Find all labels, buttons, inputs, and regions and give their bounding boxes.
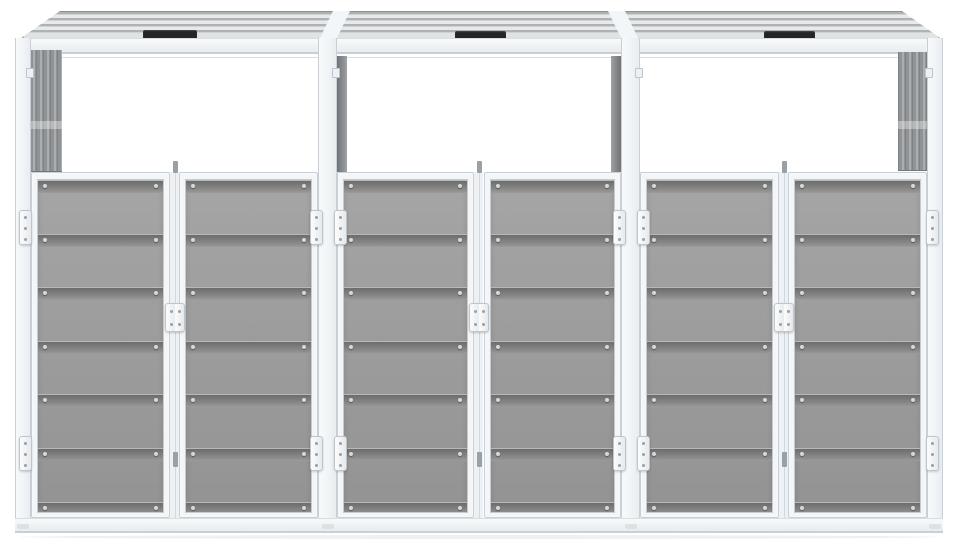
rivet [800,398,804,402]
rod-bolt-bottom [173,452,178,467]
rivet [43,398,47,402]
rivet [191,184,195,188]
hinge-screw [931,453,934,456]
door-unit3-left-louvre-panel [646,179,773,513]
rod-bolt-top [477,161,482,173]
door-unit3-left-slat-row [647,448,772,461]
rivet [652,506,656,510]
latch-screw [474,323,477,326]
foot-mark [17,524,29,529]
hinge-screw [642,442,645,445]
rivet [349,506,353,510]
door-unit1-right-louvre-panel [185,179,312,513]
rivet [458,291,462,295]
hinge-screw [618,227,621,230]
post-bracket [635,68,643,78]
door-unit2-left [337,172,474,518]
rivet [652,452,656,456]
rivet [800,506,804,510]
door-unit2-left-slat-row [344,502,467,513]
rivet [154,291,158,295]
rivet [154,184,158,188]
hinge-mid2-left [613,210,626,245]
rivet [763,291,767,295]
rivet [349,452,353,456]
door-unit2-right-louvre-panel [490,179,615,513]
hinge-screw [642,227,645,230]
post-bracket [26,68,34,78]
rivet [496,398,500,402]
rivet [496,452,500,456]
front-top-rail [15,38,943,54]
door-unit1-left-slat-row [38,502,163,513]
door-unit1-right-slat-row [186,234,311,247]
hinge-screw [315,464,318,467]
rivet [800,291,804,295]
foot-mark [929,524,941,529]
rivet [191,506,195,510]
rivet [800,184,804,188]
hinge-screw [618,238,621,241]
rivet [458,506,462,510]
rivet [191,291,195,295]
rivet [458,398,462,402]
latch-screw [170,310,173,313]
rivet [496,184,500,188]
door-unit1-right-slat-row [186,180,311,193]
door-unit3-right-slat-row [795,287,920,300]
rivet [605,452,609,456]
hinge-screw [618,442,621,445]
hinge-left-outer [19,436,32,471]
rivet [652,184,656,188]
rivet [800,345,804,349]
hinge-mid1-left [310,436,323,471]
door-unit1-left-slat-row [38,180,163,193]
bin-shed-photo [0,0,954,544]
hinge-screw [339,442,342,445]
door-unit3-left-slat-row [647,234,772,247]
rivet [458,452,462,456]
hinge-screw [315,442,318,445]
hinge-screw [642,216,645,219]
latch-unit3 [774,303,794,332]
hinge-mid1-left [310,210,323,245]
rivet [458,238,462,242]
door-unit2-left-slat-row [344,180,467,193]
door-unit1-right-slat-row [186,448,311,461]
rail-shadow-line [31,57,927,58]
hinge-screw [339,227,342,230]
door-unit1-left-slat-row [38,394,163,407]
rivet [763,506,767,510]
rivet [191,398,195,402]
door-unit1-left-louvre-panel [37,179,164,513]
foot-mark [625,524,637,529]
door-unit2-right-slat-row [491,287,614,300]
door-unit3-right [788,172,927,518]
rivet [911,398,915,402]
rivet [349,184,353,188]
door-unit2-right-slat-row [491,394,614,407]
ground-shadow [20,535,938,539]
door-unit1-left-slat-row [38,341,163,354]
rivet [763,184,767,188]
latch-screw [178,310,181,313]
door-unit1-right [179,172,318,518]
door-unit3-right-slat-row [795,448,920,461]
door-unit2-right-slat-row [491,502,614,513]
rivet [652,291,656,295]
rod-bolt-top [782,161,787,173]
latch-screw [779,310,782,313]
hinge-screw [618,216,621,219]
hinge-mid1-right [334,210,347,245]
rivet [349,291,353,295]
rivet [911,452,915,456]
rivet [191,452,195,456]
hinge-screw [24,238,27,241]
hinge-left-outer [19,210,32,245]
rivet [458,184,462,188]
rivet [496,291,500,295]
rivet [349,345,353,349]
rivet [496,506,500,510]
rivet [154,238,158,242]
rivet [800,452,804,456]
door-unit3-left-slat-row [647,287,772,300]
hinge-screw [931,442,934,445]
door-unit3-left-slat-row [647,341,772,354]
door-unit2-left-louvre-panel [343,179,468,513]
door-unit3-right-slat-row [795,341,920,354]
post-bracket [332,68,340,78]
door-unit2-right [484,172,621,518]
rod-bolt-bottom [477,452,482,467]
hinge-screw [339,453,342,456]
door-unit2-right-slat-row [491,448,614,461]
door-unit3-left-slat-row [647,394,772,407]
foot-mark [322,524,334,529]
door-unit1-right-slat-row [186,394,311,407]
hinge-mid2-left [613,436,626,471]
rivet [911,506,915,510]
rivet [652,398,656,402]
hinge-screw [642,464,645,467]
rivet [302,238,306,242]
door-unit2-right-slat-row [491,234,614,247]
hinge-screw [339,238,342,241]
rivet [763,238,767,242]
rivet [496,345,500,349]
rivet [43,291,47,295]
rivet [154,398,158,402]
hinge-screw [315,238,318,241]
rivet [652,345,656,349]
rivet [458,345,462,349]
rivet [43,345,47,349]
rivet [43,452,47,456]
door-unit1-left-slat-row [38,448,163,461]
hinge-screw [931,216,934,219]
door-unit2-left-slat-row [344,234,467,247]
latch-screw [482,310,485,313]
rivet [191,345,195,349]
hinge-screw [339,464,342,467]
post-bracket [925,68,933,78]
door-unit2-right-slat-row [491,341,614,354]
door-unit1-right-slat-row [186,287,311,300]
hinge-screw [931,238,934,241]
door-unit2-left-slat-row [344,448,467,461]
rivet [605,345,609,349]
rivet [154,345,158,349]
latch-screw [178,323,181,326]
hinge-screw [24,453,27,456]
hinge-screw [24,216,27,219]
door-unit2-left-slat-row [344,341,467,354]
rivet [43,506,47,510]
rivet [652,238,656,242]
roof-back-edge [58,10,904,12]
door-unit3-right-slat-row [795,234,920,247]
rod-bolt-bottom [782,452,787,467]
door-unit3-right-slat-row [795,180,920,193]
latch-unit1 [165,303,185,332]
rivet [911,345,915,349]
hinge-screw [642,238,645,241]
rivet [349,398,353,402]
partition-sliver-2 [611,56,621,172]
rivet [911,184,915,188]
rivet [302,506,306,510]
rivet [763,452,767,456]
door-unit1-left-slat-row [38,287,163,300]
hinge-screw [24,227,27,230]
door-unit3-right-slat-row [795,394,920,407]
rivet [763,345,767,349]
rivet [800,238,804,242]
latch-unit2 [469,303,489,332]
door-unit1-left [31,172,170,518]
hinge-screw [24,464,27,467]
latch-screw [779,323,782,326]
hinge-screw [24,442,27,445]
rivet [43,184,47,188]
door-unit2-right-slat-row [491,180,614,193]
hinge-screw [642,453,645,456]
rod-bolt-top [173,161,178,173]
rivet [302,184,306,188]
door-unit3-right-slat-row [795,502,920,513]
hinge-right-outer [926,436,939,471]
door-unit3-left-slat-row [647,180,772,193]
door-unit2-left-slat-row [344,394,467,407]
latch-screw [474,310,477,313]
hinge-screw [315,227,318,230]
latch-screw [787,310,790,313]
latch-screw [482,323,485,326]
rivet [302,345,306,349]
rivet [605,238,609,242]
rivet [496,238,500,242]
hinge-mid2-right [637,210,650,245]
rivet [302,398,306,402]
rivet [43,238,47,242]
hinge-screw [618,464,621,467]
bottom-rail [15,518,943,533]
door-unit3-left [640,172,779,518]
rivet [154,506,158,510]
hinge-screw [931,464,934,467]
rivet [302,452,306,456]
rivet [911,291,915,295]
door-unit3-left-slat-row [647,502,772,513]
rivet [605,291,609,295]
rivet [763,398,767,402]
rivet [605,184,609,188]
door-unit3-right-louvre-panel [794,179,921,513]
hinge-screw [315,216,318,219]
hinge-screw [339,216,342,219]
rivet [302,291,306,295]
rivet [605,506,609,510]
rivet [154,452,158,456]
door-unit1-right-slat-row [186,341,311,354]
rivet [911,238,915,242]
hinge-screw [931,227,934,230]
hinge-screw [315,453,318,456]
door-unit1-left-slat-row [38,234,163,247]
door-unit2-left-slat-row [344,287,467,300]
hinge-right-outer [926,210,939,245]
rivet [349,238,353,242]
hinge-screw [618,453,621,456]
hinge-mid1-right [334,436,347,471]
rivet [605,398,609,402]
rivet [191,238,195,242]
hinge-mid2-right [637,436,650,471]
latch-screw [170,323,173,326]
door-unit1-right-slat-row [186,502,311,513]
latch-screw [787,323,790,326]
